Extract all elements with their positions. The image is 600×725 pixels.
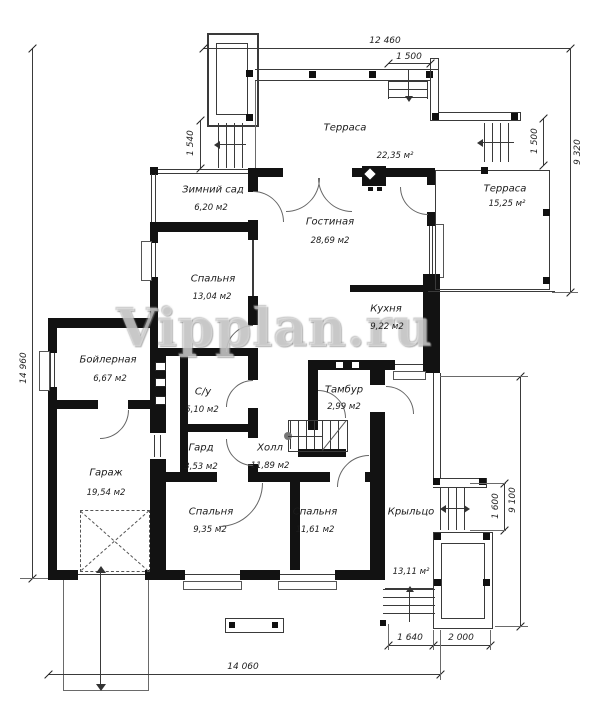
dim-ext-line xyxy=(470,483,506,484)
room-area: 28,69 м2 xyxy=(311,236,350,246)
arrow-head xyxy=(477,139,483,147)
stair-edge xyxy=(388,81,389,99)
driveway-arrow xyxy=(100,568,101,686)
room-area: 11,89 м2 xyxy=(251,461,290,471)
glazing-line xyxy=(155,174,156,222)
dim-ext-line xyxy=(433,630,434,650)
room-label: Тамбур xyxy=(325,385,363,396)
dim-ext-line xyxy=(388,624,389,650)
window-mullion xyxy=(50,353,51,387)
wall-segment xyxy=(257,472,330,482)
dim-label: 1 500 xyxy=(530,128,540,154)
room-area: 6,20 м2 xyxy=(194,203,227,213)
room-area: 3,53 м2 xyxy=(184,462,217,472)
glazing-line xyxy=(153,173,252,174)
window-mullion xyxy=(432,226,433,274)
room-area: 9,22 м2 xyxy=(370,322,403,332)
room-label: Спальня xyxy=(189,507,234,518)
dim-label: 1 500 xyxy=(396,52,422,62)
porch-edge xyxy=(440,373,441,478)
room-area: 11,61 м2 xyxy=(296,525,335,535)
gate-post xyxy=(229,622,235,628)
porch-post xyxy=(483,579,490,586)
walkway-line xyxy=(438,112,521,113)
porch-post xyxy=(434,533,441,540)
stair-arrow xyxy=(409,588,410,622)
window-mullion xyxy=(154,435,155,457)
vent-shaft xyxy=(155,378,166,387)
room-area: 22,35 м² xyxy=(377,151,414,161)
arrow-head xyxy=(96,566,106,573)
room-area: 13,04 м2 xyxy=(193,292,232,302)
dim-label: 14 960 xyxy=(19,352,29,384)
dim-line xyxy=(543,118,544,165)
room-label: Крыльцо xyxy=(388,507,435,518)
dim-label: 14 060 xyxy=(227,662,259,672)
driveway-edge xyxy=(63,690,149,691)
floor-plan: 12 460 1 500 1 540 9 320 1 500 9 100 1 6… xyxy=(0,0,600,725)
room-label: Гостиная xyxy=(306,217,354,228)
dim-line xyxy=(520,376,521,626)
porch-post xyxy=(380,620,386,626)
room-label: Зимний сад xyxy=(182,185,244,196)
dim-label: 1 540 xyxy=(186,130,196,156)
window-mullion xyxy=(280,574,335,575)
dim-line xyxy=(48,674,440,675)
dim-ext-line xyxy=(440,376,528,377)
room-area: 19,54 м2 xyxy=(87,488,126,498)
arrow-head xyxy=(406,586,414,592)
stair-arrow xyxy=(218,144,246,145)
porch-post xyxy=(434,579,441,586)
stair-edge xyxy=(427,81,428,99)
glazing-line xyxy=(153,169,252,170)
dim-ext-line xyxy=(490,630,491,650)
door-arc xyxy=(304,130,400,226)
terrace-post xyxy=(432,113,439,120)
window-frame xyxy=(393,371,426,380)
dim-label: 9 100 xyxy=(508,487,518,513)
room-area: 15,25 м² xyxy=(489,199,526,209)
room-label: Гараж xyxy=(89,468,122,479)
terrace-post xyxy=(543,277,550,284)
window-mullion xyxy=(395,364,423,365)
room-label: Бойлерная xyxy=(79,355,136,366)
dim-label: 1 640 xyxy=(397,633,423,643)
gate-post xyxy=(272,622,278,628)
garage-door-sill xyxy=(78,574,145,575)
window-frame xyxy=(39,351,50,391)
terrace-post xyxy=(246,114,253,121)
porch-post xyxy=(433,478,440,485)
arrow-head xyxy=(405,96,413,102)
dim-line xyxy=(203,48,570,49)
dim-line xyxy=(570,48,571,292)
room-area: 9,35 м2 xyxy=(193,525,226,535)
arrow-head xyxy=(440,505,446,513)
window-mullion xyxy=(151,243,152,277)
terrace-post xyxy=(309,71,316,78)
room-label: Гард xyxy=(189,443,214,454)
walkway-line xyxy=(430,120,521,121)
dim-line xyxy=(504,483,505,530)
terrace-edge xyxy=(255,81,256,168)
walkway-line xyxy=(438,58,439,112)
wall-segment xyxy=(150,277,158,348)
dim-line xyxy=(200,120,201,168)
room-label: Кухня xyxy=(370,304,402,315)
wall-segment xyxy=(48,387,57,580)
wall-segment xyxy=(248,296,258,325)
porch-edge xyxy=(433,373,434,478)
dim-label: 12 460 xyxy=(369,36,401,46)
room-area: 13,11 м² xyxy=(393,567,430,577)
terrace-post xyxy=(369,71,376,78)
wall-segment xyxy=(48,570,78,580)
room-label: Терраса xyxy=(484,184,527,195)
room-area: 5,10 м2 xyxy=(185,405,218,415)
wall-segment xyxy=(48,318,57,353)
wall-segment xyxy=(48,318,158,328)
landing-inner xyxy=(216,43,248,115)
vent-notch xyxy=(336,362,343,368)
window-mullion xyxy=(160,435,161,457)
terrace-post xyxy=(543,209,550,216)
glazing-line xyxy=(151,174,152,222)
room-label: С/у xyxy=(195,387,211,398)
arrow-head xyxy=(96,684,106,691)
dim-line xyxy=(388,645,490,646)
terrace-post xyxy=(246,70,253,77)
dim-label: 2 000 xyxy=(448,633,474,643)
walkway-line xyxy=(430,58,431,120)
wall-segment xyxy=(350,285,428,292)
room-area: 2,99 м2 xyxy=(327,402,360,412)
vent-shaft xyxy=(155,396,166,405)
arrow-head xyxy=(214,141,220,149)
window-frame xyxy=(183,581,242,590)
wall-segment xyxy=(240,570,280,580)
porch-structure-inner xyxy=(441,543,485,619)
stair-treads xyxy=(218,123,247,168)
dim-ext-line xyxy=(495,626,528,627)
dim-label: 9 320 xyxy=(573,139,583,165)
terrace-post xyxy=(481,167,488,174)
window-mullion xyxy=(429,226,430,274)
dim-line xyxy=(32,48,33,578)
vent-notch xyxy=(352,362,359,368)
window-frame xyxy=(278,581,337,590)
stair-rail xyxy=(288,436,322,437)
window-mullion xyxy=(155,243,156,277)
stair-arrow xyxy=(480,142,514,143)
room-label: Терраса xyxy=(324,123,367,134)
wall-segment xyxy=(145,570,185,580)
stair-treads xyxy=(290,421,344,449)
vent-shaft xyxy=(155,362,166,371)
arrow-head xyxy=(464,505,470,513)
dim-line xyxy=(388,63,430,64)
room-label: Холл xyxy=(257,443,283,454)
porch-post xyxy=(483,533,490,540)
window-mullion xyxy=(54,353,55,387)
room-area: 6,67 м2 xyxy=(93,374,126,384)
terrace-line xyxy=(428,291,555,292)
room-label: Спальня xyxy=(293,507,338,518)
dim-label: 1 600 xyxy=(491,493,501,519)
window-mullion xyxy=(185,574,240,575)
dim-ext-line xyxy=(20,578,48,579)
walkway-line xyxy=(255,69,438,70)
wall-segment xyxy=(128,400,150,409)
dim-ext-line xyxy=(552,292,578,293)
dim-ext-line xyxy=(470,530,506,531)
terrace-post xyxy=(511,113,518,120)
walkway-line xyxy=(520,112,521,121)
dim-ext-line xyxy=(440,630,441,680)
room-label: Спальня xyxy=(191,274,236,285)
